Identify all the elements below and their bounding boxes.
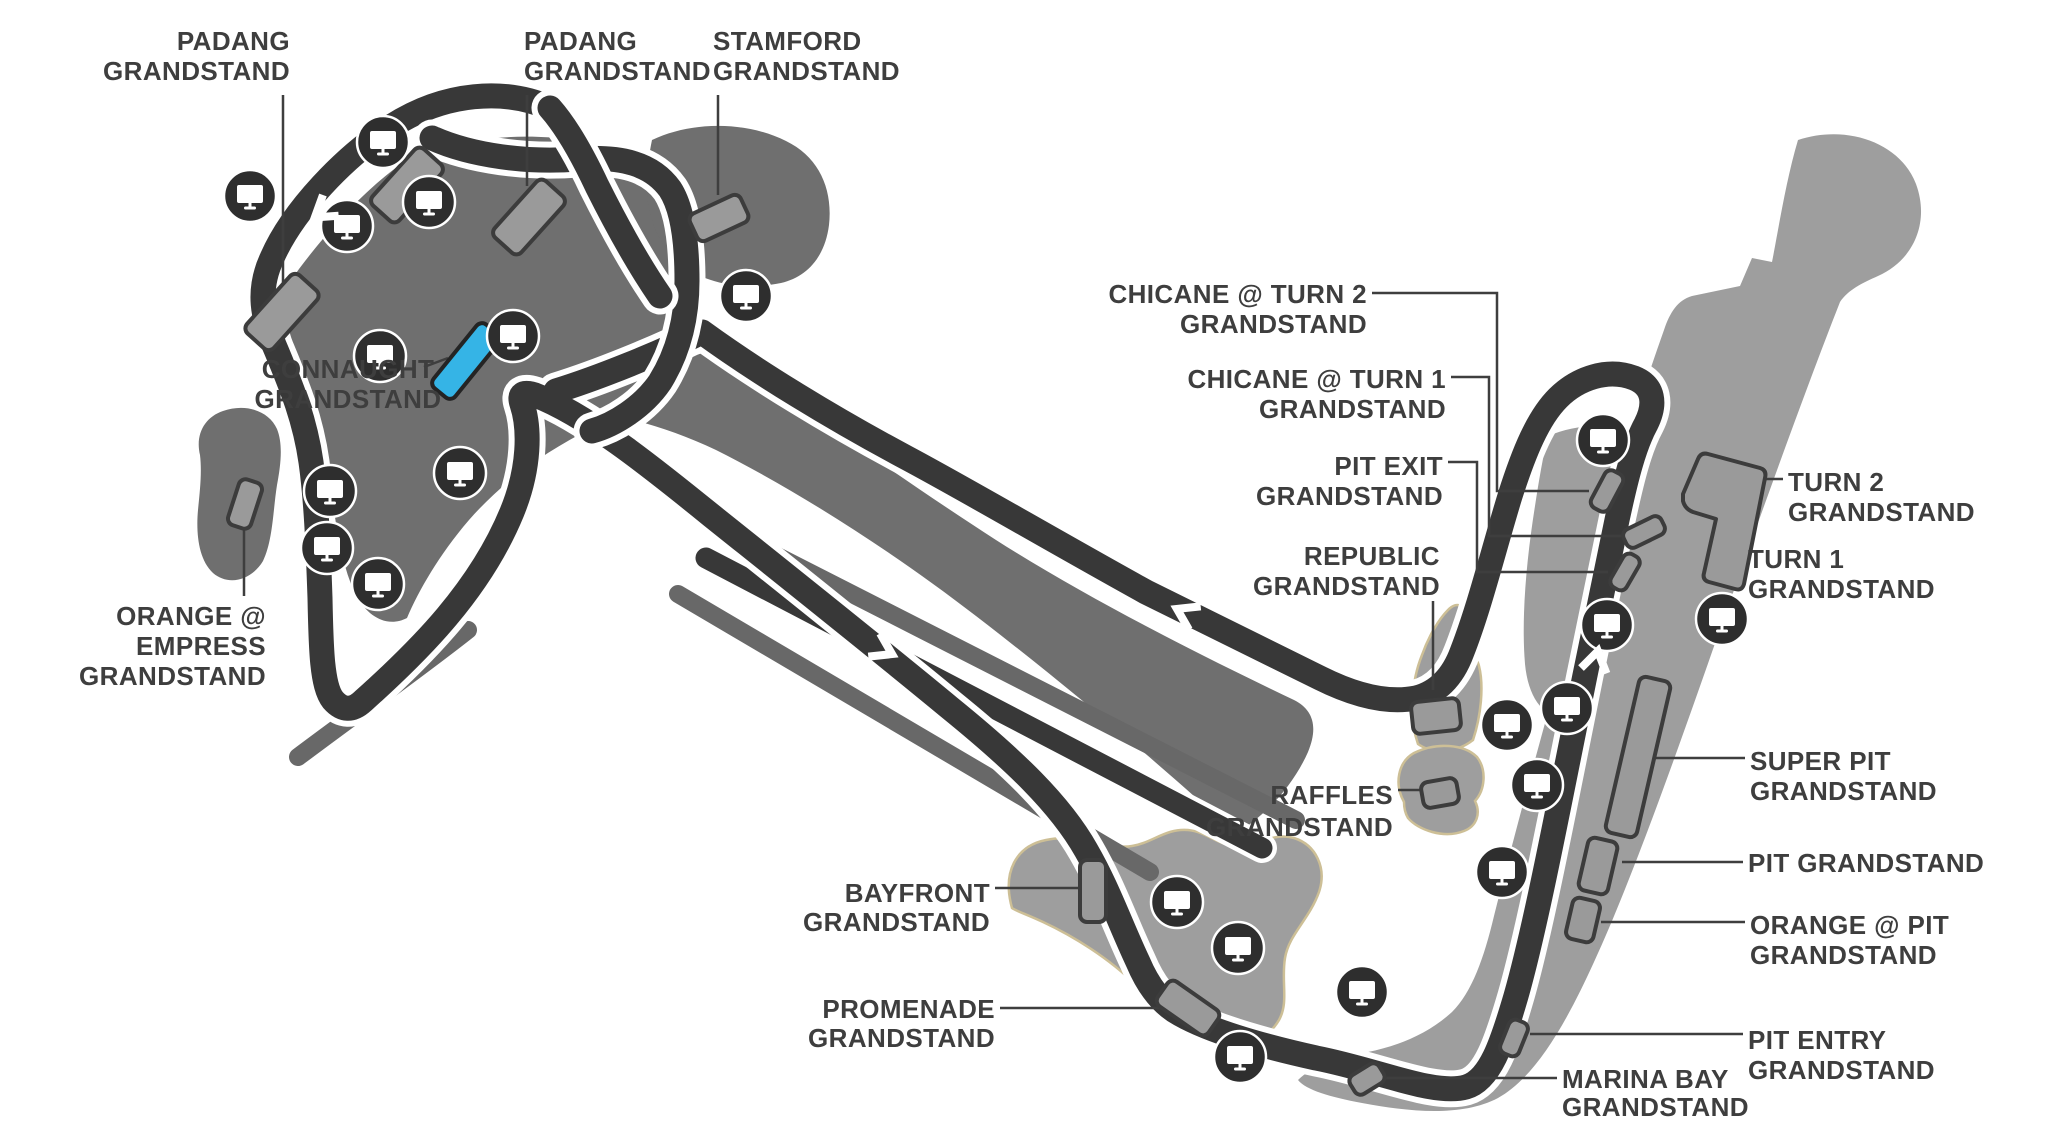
label-chicane-turn-1-line-1[interactable]: CHICANE @ TURN 1 [1187, 364, 1446, 394]
label-orange-pit-line-1[interactable]: ORANGE @ PIT [1750, 910, 1949, 940]
label-padang-1-line-1[interactable]: PADANG [177, 26, 290, 56]
grandstand-marker-republic[interactable] [1410, 698, 1461, 735]
label-promenade-line-1[interactable]: PROMENADE [822, 994, 995, 1024]
grandstand-marker-raffles[interactable] [1420, 777, 1460, 809]
label-orange-empress-line-3[interactable]: GRANDSTAND [79, 661, 266, 691]
label-turn-1-line-2[interactable]: GRANDSTAND [1748, 574, 1935, 604]
label-pit-exit-line-1[interactable]: PIT EXIT [1334, 451, 1443, 481]
label-chicane-turn-1-line-2[interactable]: GRANDSTAND [1259, 394, 1446, 424]
label-connaught-line-1[interactable]: CONNAUGHT [262, 354, 435, 384]
label-padang-1-line-2[interactable]: GRANDSTAND [103, 56, 290, 86]
tv-screen-icon [1541, 682, 1593, 734]
tv-screen-icon [301, 522, 353, 574]
label-republic-line-2[interactable]: GRANDSTAND [1253, 571, 1440, 601]
label-stamford-line-1[interactable]: STAMFORD [713, 26, 862, 56]
label-marina-bay-line-2[interactable]: GRANDSTAND [1562, 1092, 1749, 1122]
tv-screen-icon [720, 270, 772, 322]
label-turn-2-line-1[interactable]: TURN 2 [1788, 467, 1884, 497]
tv-screen-icon [1151, 876, 1203, 928]
label-bayfront-line-2[interactable]: GRANDSTAND [803, 907, 990, 937]
label-orange-empress-line-1[interactable]: ORANGE @ [116, 601, 266, 631]
label-pit-line-1[interactable]: PIT GRANDSTAND [1748, 848, 1984, 878]
tv-screen-icon [1481, 699, 1533, 751]
label-turn-1-line-1[interactable]: TURN 1 [1748, 544, 1844, 574]
label-marina-bay-line-1[interactable]: MARINA BAY [1562, 1064, 1729, 1094]
label-stamford-line-2[interactable]: GRANDSTAND [713, 56, 900, 86]
label-bayfront-line-1[interactable]: BAYFRONT [845, 878, 990, 908]
tv-screen-icon [1577, 414, 1629, 466]
tv-screen-icon [1696, 593, 1748, 645]
label-chicane-turn-2-line-1[interactable]: CHICANE @ TURN 2 [1108, 279, 1367, 309]
label-super-pit-line-2[interactable]: GRANDSTAND [1750, 776, 1937, 806]
label-padang-2-line-1[interactable]: PADANG [524, 26, 637, 56]
tv-screen-icon [1476, 846, 1528, 898]
label-raffles-line-2[interactable]: GRANDSTAND [1206, 812, 1393, 842]
tv-screen-icon [352, 558, 404, 610]
tv-screen-icon [1511, 759, 1563, 811]
tv-screen-icon [304, 465, 356, 517]
label-promenade-line-2[interactable]: GRANDSTAND [808, 1023, 995, 1053]
tv-screen-icon [1336, 966, 1388, 1018]
label-pit-entry-line-2[interactable]: GRANDSTAND [1748, 1055, 1935, 1085]
circuit-map: PADANGGRANDSTANDPADANGGRANDSTANDSTAMFORD… [0, 0, 2049, 1138]
label-chicane-turn-2-line-2[interactable]: GRANDSTAND [1180, 309, 1367, 339]
label-turn-2-line-2[interactable]: GRANDSTAND [1788, 497, 1975, 527]
label-pit-exit-line-2[interactable]: GRANDSTAND [1256, 481, 1443, 511]
label-raffles-line-1[interactable]: RAFFLES [1270, 780, 1393, 810]
label-orange-pit-line-2[interactable]: GRANDSTAND [1750, 940, 1937, 970]
tv-screen-icon [403, 176, 455, 228]
label-republic-line-1[interactable]: REPUBLIC [1304, 541, 1440, 571]
tv-screen-icon [224, 170, 276, 222]
tv-screen-icon [1212, 922, 1264, 974]
label-connaught-line-2[interactable]: GRANDSTAND [255, 384, 442, 414]
grandstand-marker-bayfront[interactable] [1080, 860, 1106, 922]
label-super-pit-line-1[interactable]: SUPER PIT [1750, 746, 1891, 776]
tv-screen-icon [434, 447, 486, 499]
tv-screen-icon [357, 116, 409, 168]
label-orange-empress-line-2[interactable]: EMPRESS [136, 631, 266, 661]
tv-screen-icon [487, 310, 539, 362]
tv-screen-icon [321, 200, 373, 252]
tv-screen-icon [1214, 1031, 1266, 1083]
label-pit-entry-line-1[interactable]: PIT ENTRY [1748, 1025, 1886, 1055]
label-padang-2-line-2[interactable]: GRANDSTAND [524, 56, 711, 86]
tv-screen-icon [1581, 599, 1633, 651]
